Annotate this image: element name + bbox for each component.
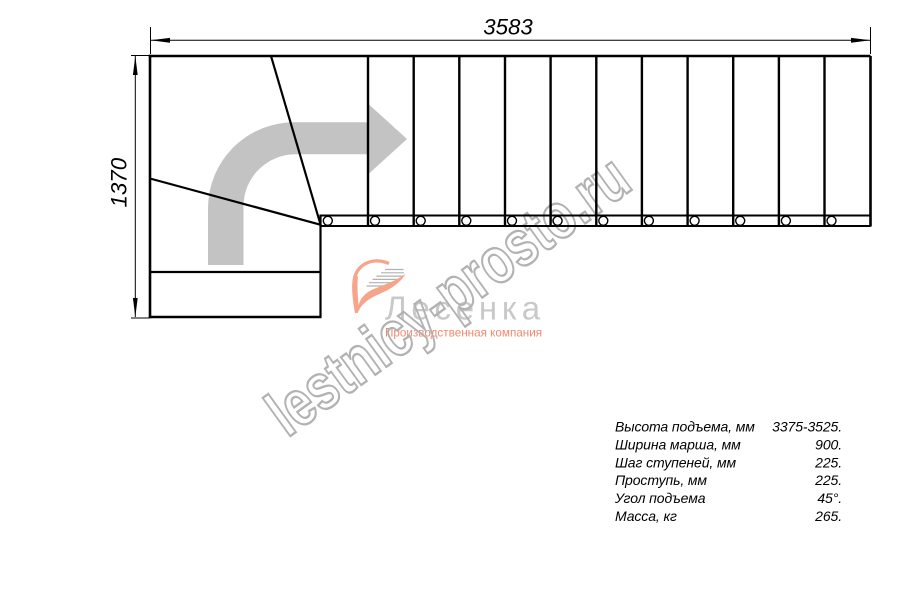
svg-text:45°.: 45°.	[817, 490, 842, 506]
svg-text:Проступь, мм: Проступь, мм	[615, 472, 707, 488]
svg-text:900.: 900.	[815, 436, 842, 452]
svg-text:265.: 265.	[814, 508, 842, 524]
svg-text:1370: 1370	[107, 157, 132, 207]
svg-text:225.: 225.	[814, 472, 842, 488]
svg-text:Высота подъема, мм: Высота подъема, мм	[615, 419, 755, 435]
svg-text:Масса, кг: Масса, кг	[615, 508, 677, 524]
svg-text:Шаг ступеней, мм: Шаг ступеней, мм	[615, 454, 736, 470]
svg-text:Угол подъема: Угол подъема	[614, 490, 706, 506]
svg-text:225.: 225.	[814, 454, 842, 470]
svg-text:Ширина марша, мм: Ширина марша, мм	[615, 436, 741, 452]
svg-text:3375-3525.: 3375-3525.	[772, 419, 842, 435]
svg-text:3583: 3583	[483, 14, 533, 39]
